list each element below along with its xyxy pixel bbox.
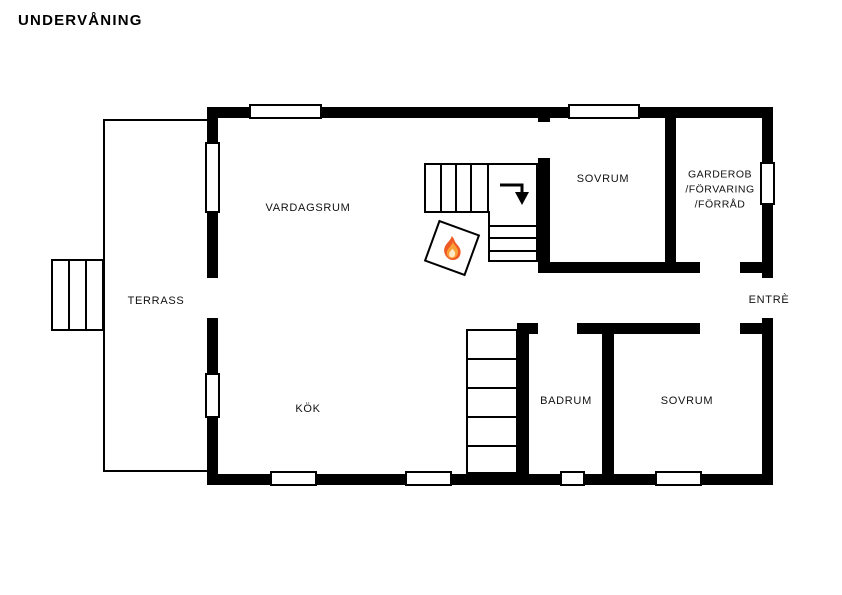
- room-label-kok: KÖK: [295, 403, 320, 415]
- wall-entre-north-right: [740, 262, 762, 273]
- window-left-vardagsrum: [205, 142, 220, 213]
- wall-sovrum-garderob: [665, 107, 676, 273]
- fireplace: [424, 220, 480, 276]
- wall-exterior-right-lower: [762, 318, 773, 485]
- room-label-garderob: GARDEROB /FÖRVARING /FÖRRÅD: [685, 168, 754, 213]
- wall-sovrum-top-door-stub: [538, 107, 550, 122]
- wall-stairs-badrum: [517, 323, 529, 474]
- stair-tread: [490, 225, 536, 227]
- stair-tread: [468, 358, 516, 360]
- stair-tread: [490, 250, 536, 252]
- down-right-arrow-icon: [497, 179, 533, 209]
- wall-stairs-sovrum: [538, 158, 550, 273]
- window-bottom-kok-1: [270, 471, 317, 486]
- wall-entre-south-right: [740, 323, 762, 334]
- window-bottom-sovrum: [655, 471, 702, 486]
- stair-tread: [455, 165, 457, 211]
- garderob-line-3: /FÖRRÅD: [685, 198, 754, 213]
- stair-tread: [440, 165, 442, 211]
- stair-tread: [468, 416, 516, 418]
- flame-icon: [440, 235, 464, 262]
- window-right-garderob: [760, 162, 775, 205]
- stair-tread: [490, 237, 536, 239]
- stair-tread: [468, 445, 516, 447]
- stair-tread: [470, 165, 472, 211]
- window-bottom-kok-2: [405, 471, 452, 486]
- window-bottom-badrum: [560, 471, 585, 486]
- room-label-sovrum-bottom: SOVRUM: [661, 395, 713, 407]
- stair-tread: [487, 165, 489, 211]
- room-label-entre: ENTRÈ: [749, 294, 790, 306]
- wall-entre-south-mid: [577, 323, 700, 334]
- room-label-vardagsrum: VARDAGSRUM: [265, 202, 350, 214]
- wall-entre-north-left: [538, 262, 700, 273]
- garderob-line-2: /FÖRVARING: [685, 183, 754, 198]
- terrace-step-line: [68, 261, 70, 329]
- garderob-line-1: GARDEROB: [685, 168, 754, 183]
- wall-badrum-sovrum: [602, 323, 614, 474]
- page-title: UNDERVÅNING: [18, 12, 143, 29]
- stair-tread: [468, 387, 516, 389]
- stairs-lower-flight: [466, 329, 518, 474]
- terrace-step-line: [85, 261, 87, 329]
- window-top-vardagsrum: [249, 104, 322, 119]
- window-left-kok: [205, 373, 220, 418]
- room-label-badrum: BADRUM: [540, 395, 592, 407]
- terrace-steps: [51, 259, 104, 331]
- room-label-terrass: TERRASS: [128, 295, 185, 307]
- window-top-sovrum: [568, 104, 640, 119]
- room-label-sovrum-top: SOVRUM: [577, 173, 629, 185]
- floor-plan: UNDERVÅNING: [0, 0, 842, 595]
